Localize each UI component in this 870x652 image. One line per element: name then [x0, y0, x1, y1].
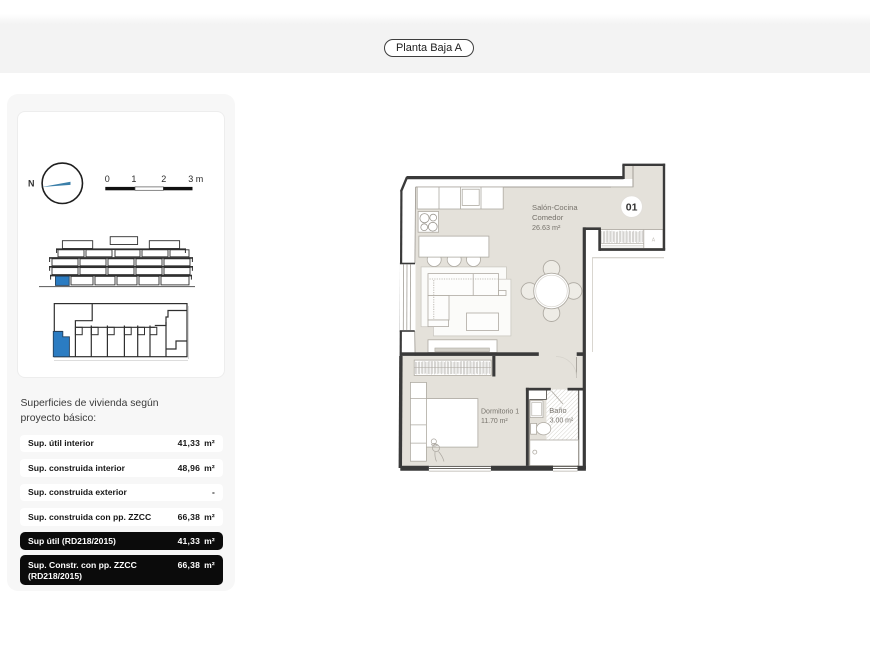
- svg-text:3 m: 3 m: [188, 174, 203, 184]
- svg-text:Salón-Cocina: Salón-Cocina: [532, 203, 578, 212]
- svg-text:Dormitorio 1: Dormitorio 1: [481, 408, 519, 415]
- svg-text:2: 2: [161, 174, 166, 184]
- svg-text:Baño: Baño: [549, 406, 566, 415]
- svg-text:11.70 m²: 11.70 m²: [481, 418, 508, 425]
- svg-text:01: 01: [626, 201, 638, 213]
- svg-text:Comedor: Comedor: [532, 213, 564, 222]
- svg-text:1: 1: [131, 174, 136, 184]
- svg-text:0: 0: [105, 174, 110, 184]
- svg-text:3.00 m²: 3.00 m²: [550, 417, 574, 424]
- svg-text:N: N: [28, 179, 35, 189]
- svg-text:26.63 m²: 26.63 m²: [532, 223, 561, 232]
